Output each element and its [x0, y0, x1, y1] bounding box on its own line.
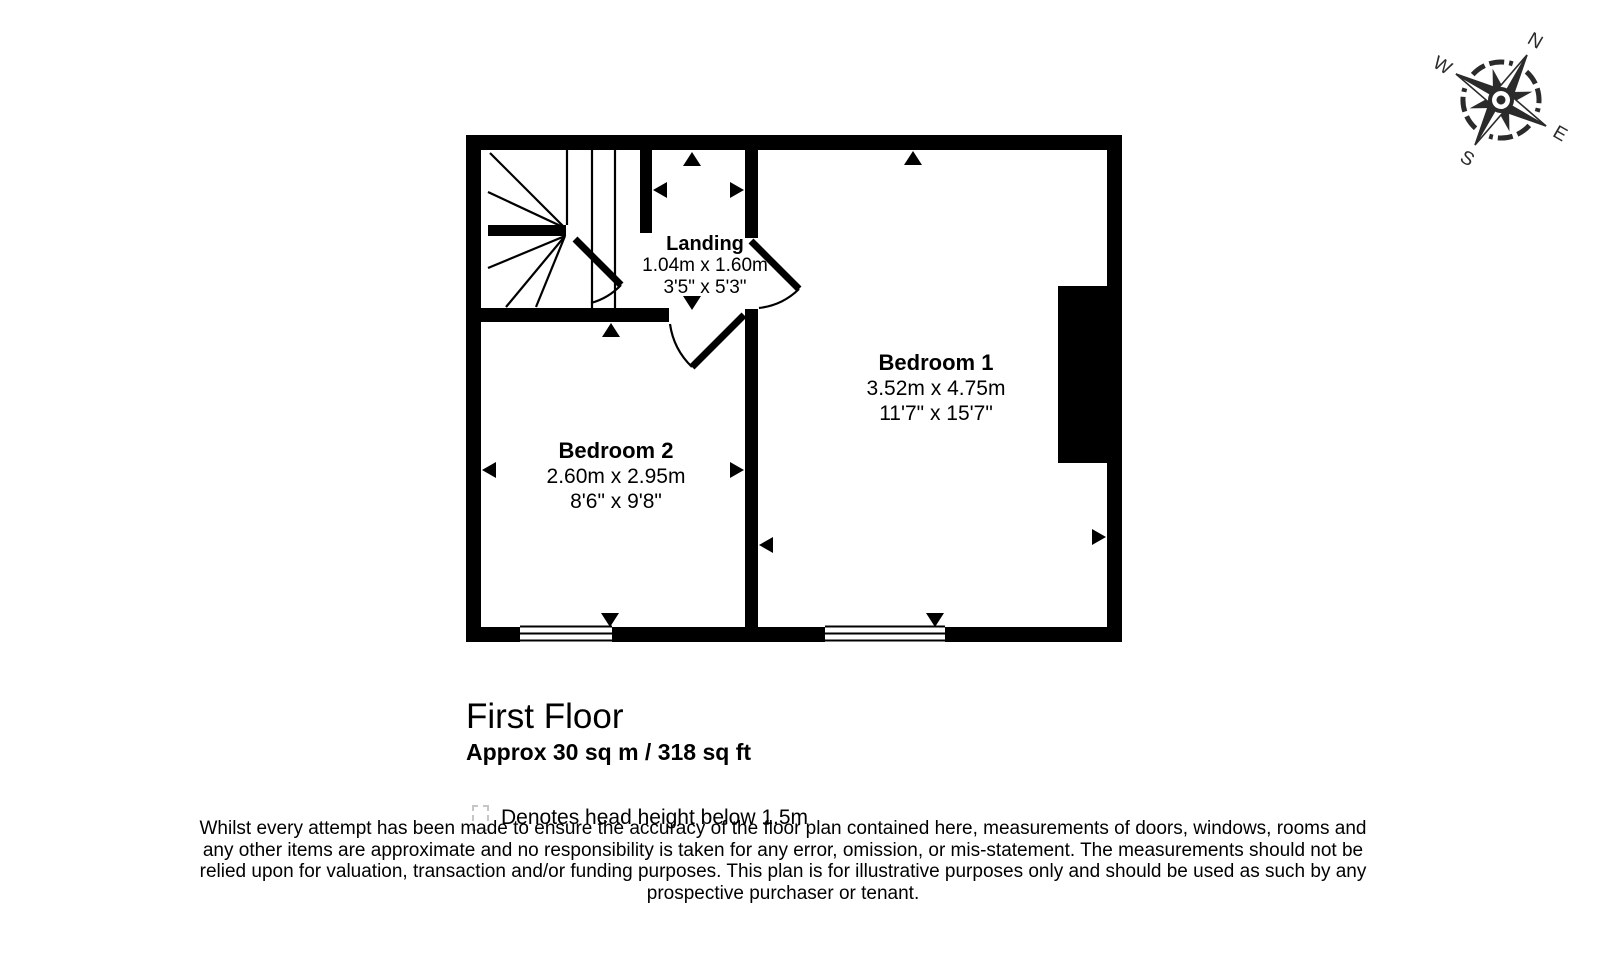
- compass-north-label: N: [1524, 29, 1546, 54]
- stairs-door-arc: [591, 285, 621, 303]
- bedroom2-door-leaf: [692, 315, 744, 367]
- bedroom2-label: Bedroom 2 2.60m x 2.95m 8'6" x 9'8": [547, 438, 686, 514]
- landing-imperial: 3'5" x 5'3": [642, 277, 768, 299]
- wall-under-stairs: [466, 308, 669, 322]
- bedroom1-metric: 3.52m x 4.75m: [867, 376, 1006, 401]
- measurement-arrows: [482, 151, 1106, 627]
- wall-top: [466, 135, 1122, 150]
- bedroom1-arrow-up: [904, 151, 922, 165]
- bedroom2-window: [520, 625, 612, 642]
- bedroom1-arrow-left: [759, 537, 773, 553]
- bedroom2-door-arc: [670, 324, 692, 367]
- landing-metric: 1.04m x 1.60m: [642, 255, 768, 277]
- wall-left: [466, 135, 481, 642]
- bedroom2-imperial: 8'6" x 9'8": [547, 489, 686, 514]
- floor-title: First Floor: [466, 697, 624, 737]
- bedroom1-window: [825, 625, 945, 642]
- wall-stairs-landing: [640, 150, 652, 233]
- compass-west-label: W: [1429, 52, 1455, 79]
- bedroom2-arrow-right: [730, 462, 744, 478]
- stair-winder: [488, 192, 565, 228]
- stairs-newel-wall: [488, 225, 566, 236]
- wall-right: [1107, 135, 1122, 642]
- bedroom1-imperial: 11'7" x 15'7": [867, 401, 1006, 426]
- wall-bedroom1-lower: [745, 309, 758, 627]
- stair-winder: [506, 236, 565, 307]
- bedroom2-name: Bedroom 2: [547, 438, 686, 464]
- bedroom1-arrow-down: [926, 613, 944, 627]
- landing-arrow-left: [653, 182, 667, 198]
- bedroom2-arrow-up: [602, 323, 620, 337]
- stair-winder: [490, 153, 565, 228]
- landing-arrow-right: [730, 182, 744, 198]
- landing-arrow-up: [683, 152, 701, 166]
- bedroom2-arrow-down: [601, 613, 619, 627]
- floor-area: Approx 30 sq m / 318 sq ft: [466, 739, 751, 765]
- landing-name: Landing: [642, 233, 768, 255]
- bedroom1-name: Bedroom 1: [867, 350, 1006, 376]
- compass-rose-icon: N E S W: [1395, 0, 1600, 205]
- bedroom2-arrow-left: [482, 462, 496, 478]
- bedroom1-label: Bedroom 1 3.52m x 4.75m 11'7" x 15'7": [867, 350, 1006, 426]
- bedroom2-metric: 2.60m x 2.95m: [547, 464, 686, 489]
- disclaimer-text: Whilst every attempt has been made to en…: [198, 818, 1368, 904]
- chimney-breast: [1058, 286, 1107, 463]
- bedroom1-arrow-right: [1092, 529, 1106, 545]
- walls: [466, 135, 1122, 642]
- wall-bedroom1-upper: [745, 150, 758, 238]
- compass-east-label: E: [1549, 122, 1570, 147]
- landing-label: Landing 1.04m x 1.60m 3'5" x 5'3": [642, 233, 768, 299]
- compass-south-label: S: [1456, 147, 1477, 172]
